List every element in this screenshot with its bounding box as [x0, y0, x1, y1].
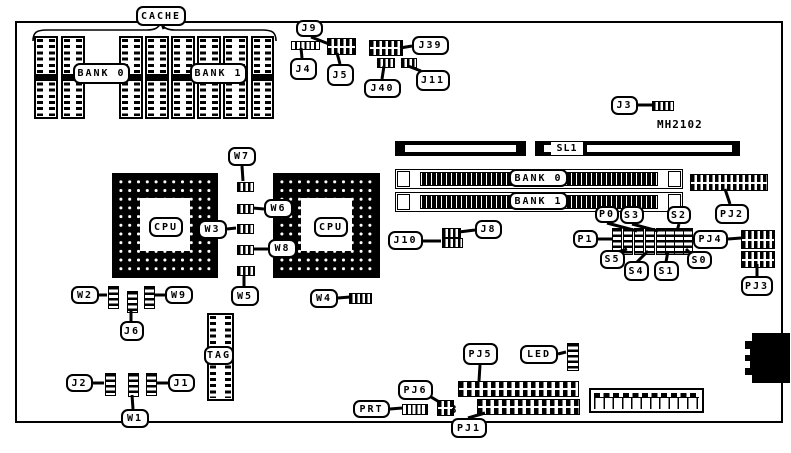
label-tag: TAG [204, 346, 234, 365]
label-pj2: PJ2 [715, 204, 749, 224]
pj1-connector [477, 399, 580, 415]
keyboard-din-connector-notch-0 [745, 349, 750, 355]
cache-chip-4-band [147, 74, 167, 81]
j2-jumper [105, 373, 116, 396]
cpu-socket-right-label: CPU [314, 217, 348, 237]
w7-jumper [237, 182, 254, 192]
cache-chip-8 [251, 36, 274, 119]
label-w2: W2 [71, 286, 99, 304]
label-j39: J39 [412, 36, 449, 55]
label-led: LED [520, 345, 558, 364]
simm-socket-bank0-capl [397, 171, 410, 187]
cpu-socket-left-label: CPU [149, 217, 183, 237]
w2-jumper [108, 286, 119, 309]
label-simm-bank0: BANK 0 [509, 169, 568, 187]
j8-connector [442, 228, 461, 238]
label-w7: W7 [228, 147, 256, 166]
label-j8: J8 [475, 220, 502, 239]
pj4-connector [741, 230, 775, 249]
label-j9: J9 [296, 20, 323, 37]
j6-jumper [127, 291, 138, 313]
w9-jumper [144, 286, 155, 309]
j40-connector [377, 58, 395, 68]
text-part-number: MH2102 [657, 118, 703, 131]
label-s4: S4 [624, 261, 649, 281]
w8-jumper [237, 245, 254, 255]
label-s3: S3 [620, 206, 644, 224]
j39-connector [369, 40, 403, 56]
w4-jumper [349, 293, 372, 304]
w3-jumper [237, 224, 254, 234]
simm-socket-bank1-capl [397, 194, 410, 210]
label-w3: W3 [198, 220, 227, 239]
label-sl1: SL1 [551, 142, 583, 155]
keyboard-din-connector [752, 333, 790, 383]
label-j10: J10 [388, 231, 423, 250]
label-cache-bank0: BANK 0 [73, 63, 130, 84]
keyboard-din-connector-strip [745, 341, 753, 375]
s5-jumper [623, 228, 633, 255]
w5-jumper [237, 266, 255, 276]
label-j6: J6 [120, 321, 144, 341]
label-j11: J11 [416, 70, 450, 91]
label-pj5: PJ5 [463, 343, 498, 365]
expansion-slot-left-window-0 [405, 145, 516, 152]
label-s2: S2 [667, 206, 691, 224]
cache-chip-4 [145, 36, 169, 119]
keyboard-din-connector-notch-1 [745, 361, 750, 368]
label-cache-bank1: BANK 1 [190, 63, 247, 84]
j10-connector [442, 238, 463, 248]
motherboard-diagram: CPUCPUCACHEBANK 0BANK 1J9J4J5J39J40J11J3… [0, 0, 791, 453]
label-w9: W9 [165, 286, 193, 304]
pj5-connector [458, 381, 579, 397]
label-w4: W4 [310, 289, 338, 308]
label-s0: S0 [687, 251, 712, 269]
label-p0: P0 [595, 206, 619, 223]
cache-chip-1 [34, 36, 58, 119]
cache-chip-8-band [253, 74, 272, 81]
label-cache: CACHE [136, 6, 186, 26]
label-w5: W5 [231, 286, 259, 306]
label-s1: S1 [654, 261, 679, 281]
label-j1: J1 [168, 374, 195, 392]
power-connector-sq [594, 397, 699, 409]
s4-jumper [645, 228, 655, 255]
led-connector [567, 343, 579, 371]
label-j5: J5 [327, 64, 354, 86]
label-pj3: PJ3 [741, 276, 773, 296]
prt-connector [402, 404, 428, 415]
label-w6: W6 [264, 199, 293, 218]
w1-jumper [128, 373, 139, 397]
label-j3: J3 [611, 96, 638, 115]
label-p1: P1 [573, 230, 598, 248]
expansion-slot-sl1-window-1 [587, 145, 732, 152]
label-simm-bank1: BANK 1 [509, 192, 568, 210]
label-j40: J40 [364, 79, 401, 98]
j5-j9-connector [327, 38, 356, 55]
expansion-slot-left [395, 141, 526, 156]
w6-jumper [237, 204, 254, 214]
label-s5: S5 [600, 250, 625, 269]
label-j4: J4 [290, 58, 317, 80]
text-pj6-pin-3: 3 [450, 403, 458, 416]
cache-chip-1-band [36, 74, 56, 81]
label-w1: W1 [121, 409, 149, 428]
pj2-connector [690, 174, 768, 191]
p0-jumper [634, 228, 644, 255]
j3-connector [652, 101, 674, 111]
label-prt: PRT [353, 400, 390, 418]
label-pj6: PJ6 [398, 380, 433, 400]
expansion-slot-sl1-window-0 [544, 145, 551, 152]
label-w8: W8 [268, 239, 297, 258]
label-pj1: PJ1 [451, 418, 487, 438]
j11-connector [401, 58, 417, 68]
simm-socket-bank0-capr [668, 171, 681, 187]
label-j2: J2 [66, 374, 93, 392]
power-connector [589, 388, 704, 413]
pj3-connector [741, 251, 775, 268]
label-pj4: PJ4 [693, 230, 728, 249]
j1-jumper [146, 373, 157, 396]
j4-connector [291, 41, 320, 50]
